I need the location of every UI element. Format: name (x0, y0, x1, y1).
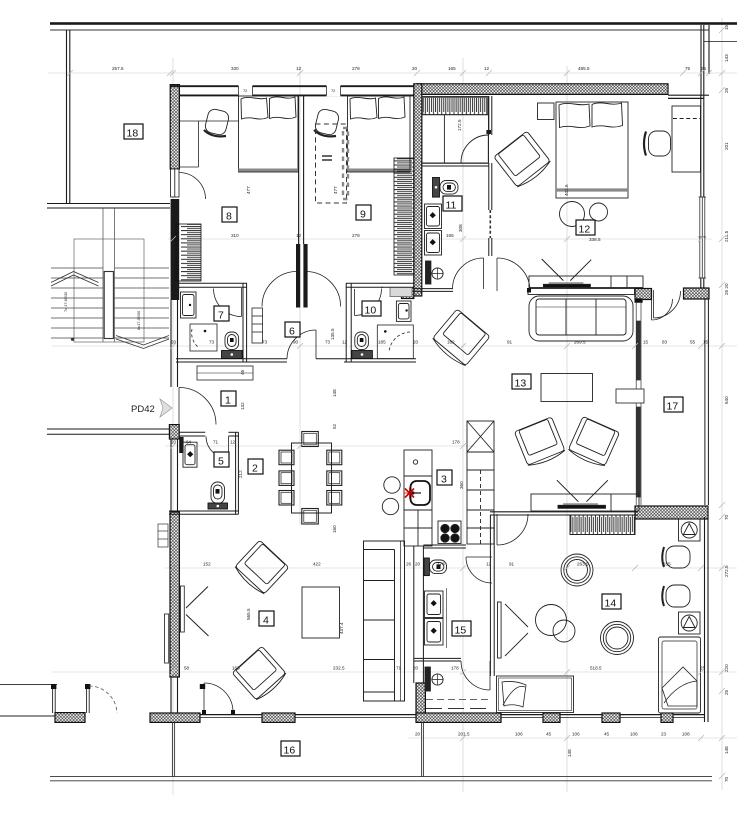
svg-text:12: 12 (579, 224, 591, 236)
svg-text:182: 182 (447, 340, 455, 345)
svg-text:540: 540 (724, 396, 729, 404)
svg-text:90: 90 (293, 340, 299, 345)
svg-text:7: 7 (218, 310, 224, 322)
svg-text:160: 160 (332, 525, 337, 533)
svg-text:70: 70 (724, 776, 729, 782)
svg-text:13: 13 (515, 378, 527, 390)
svg-text:148: 148 (724, 746, 729, 754)
svg-text:8x17.35/30: 8x17.35/30 (136, 310, 141, 330)
svg-text:16: 16 (284, 745, 296, 757)
svg-text:71: 71 (213, 440, 219, 445)
svg-text:9: 9 (360, 209, 366, 221)
svg-text:12: 12 (486, 562, 492, 567)
svg-text:201: 201 (724, 142, 729, 150)
svg-text:4: 4 (263, 615, 269, 627)
svg-text:5: 5 (218, 456, 224, 468)
svg-text:12: 12 (230, 440, 236, 445)
svg-text:20: 20 (413, 340, 419, 345)
svg-text:263.5: 263.5 (577, 562, 589, 567)
svg-text:72: 72 (331, 88, 335, 93)
svg-text:148: 148 (332, 389, 337, 397)
svg-text:477: 477 (333, 186, 338, 194)
svg-text:272.5: 272.5 (724, 565, 729, 577)
svg-text:135.5: 135.5 (330, 328, 335, 340)
svg-text:73: 73 (209, 340, 215, 345)
svg-text:23: 23 (661, 732, 667, 737)
svg-text:310: 310 (231, 233, 239, 238)
svg-text:201.5: 201.5 (458, 732, 470, 737)
svg-text:152: 152 (203, 562, 211, 567)
svg-text:143: 143 (724, 54, 729, 62)
svg-text:178: 178 (451, 666, 459, 671)
svg-text:12: 12 (296, 233, 302, 238)
svg-text:17: 17 (667, 401, 679, 413)
svg-text:269.5: 269.5 (574, 340, 586, 345)
svg-text:422: 422 (313, 562, 321, 567)
svg-text:132: 132 (240, 402, 245, 410)
svg-text:7x 17.65/30: 7x 17.65/30 (63, 291, 68, 312)
svg-text:278: 278 (352, 233, 360, 238)
svg-text:91: 91 (507, 340, 513, 345)
svg-text:52: 52 (332, 423, 337, 429)
svg-text:108: 108 (682, 732, 690, 737)
svg-text:20: 20 (413, 666, 419, 671)
svg-text:25 20: 25 20 (724, 283, 729, 295)
svg-text:106: 106 (630, 732, 638, 737)
svg-text:64: 64 (186, 440, 192, 445)
svg-text:12: 12 (484, 66, 490, 71)
svg-text:83: 83 (662, 340, 668, 345)
svg-text:257.5: 257.5 (112, 66, 124, 71)
svg-text:12: 12 (342, 340, 348, 345)
svg-text:165: 165 (446, 233, 454, 238)
svg-text:2: 2 (252, 463, 258, 475)
svg-text:485.5: 485.5 (578, 66, 590, 71)
svg-text:14: 14 (605, 598, 617, 610)
svg-text:46: 46 (240, 369, 245, 375)
svg-text:72: 72 (243, 88, 247, 93)
svg-text:165: 165 (663, 562, 671, 567)
svg-text:PD42: PD42 (131, 404, 155, 415)
svg-text:45: 45 (546, 732, 552, 737)
svg-text:11: 11 (446, 200, 457, 212)
svg-text:565.5: 565.5 (246, 608, 251, 620)
svg-text:15: 15 (455, 625, 467, 637)
svg-text:212: 212 (238, 470, 243, 478)
svg-text:73: 73 (262, 340, 268, 345)
svg-text:71: 71 (396, 666, 402, 671)
svg-text:308: 308 (458, 224, 463, 232)
svg-text:45: 45 (604, 732, 610, 737)
svg-text:8: 8 (226, 211, 232, 223)
svg-text:106: 106 (572, 732, 580, 737)
svg-text:148: 148 (567, 749, 572, 757)
svg-text:15: 15 (703, 340, 709, 345)
svg-text:232.5: 232.5 (333, 666, 345, 671)
svg-text:73: 73 (325, 340, 331, 345)
svg-text:220: 220 (724, 664, 729, 672)
svg-text:178: 178 (452, 440, 460, 445)
svg-text:165: 165 (448, 66, 456, 71)
svg-text:402.5: 402.5 (564, 184, 569, 196)
svg-text:178: 178 (437, 562, 445, 567)
svg-text:338.5: 338.5 (589, 237, 601, 242)
svg-text:20: 20 (415, 732, 421, 737)
svg-text:10: 10 (365, 305, 377, 317)
svg-text:12: 12 (296, 66, 302, 71)
svg-text:58: 58 (184, 666, 190, 671)
svg-text:25: 25 (724, 87, 729, 93)
svg-text:25: 25 (724, 689, 729, 695)
svg-text:106: 106 (515, 732, 523, 737)
svg-text:70: 70 (724, 514, 729, 520)
svg-text:3: 3 (441, 474, 447, 486)
svg-text:172.5: 172.5 (457, 119, 462, 131)
svg-text:330: 330 (231, 66, 239, 71)
svg-text:15: 15 (643, 340, 649, 345)
svg-text:360: 360 (459, 481, 464, 489)
svg-text:278: 278 (352, 66, 360, 71)
svg-text:477: 477 (246, 186, 251, 194)
svg-text:437.4: 437.4 (339, 622, 344, 634)
svg-text:18: 18 (127, 128, 139, 140)
svg-text:163: 163 (232, 666, 240, 671)
svg-text:6: 6 (289, 326, 295, 338)
svg-text:26: 26 (406, 562, 412, 567)
svg-text:518.5: 518.5 (590, 666, 602, 671)
svg-text:55: 55 (690, 340, 696, 345)
svg-text:185: 185 (378, 340, 386, 345)
svg-text:20: 20 (412, 66, 418, 71)
svg-text:20: 20 (415, 562, 421, 567)
svg-text:91: 91 (509, 562, 515, 567)
svg-text:1: 1 (225, 395, 231, 407)
